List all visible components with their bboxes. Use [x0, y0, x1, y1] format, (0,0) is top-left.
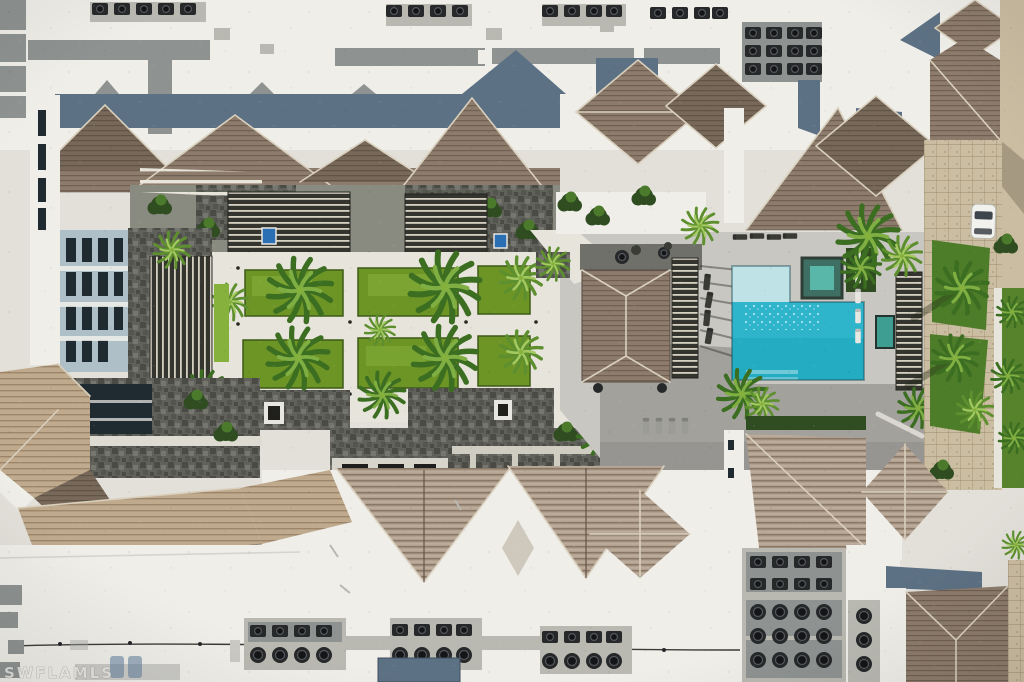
- watermark-text: SWFLAMLS: [4, 664, 114, 682]
- aerial-photo: SWFLAMLS: [0, 0, 1024, 682]
- vignette: [0, 0, 1024, 682]
- aerial-photo-canvas: SWFLAMLS: [0, 0, 1024, 682]
